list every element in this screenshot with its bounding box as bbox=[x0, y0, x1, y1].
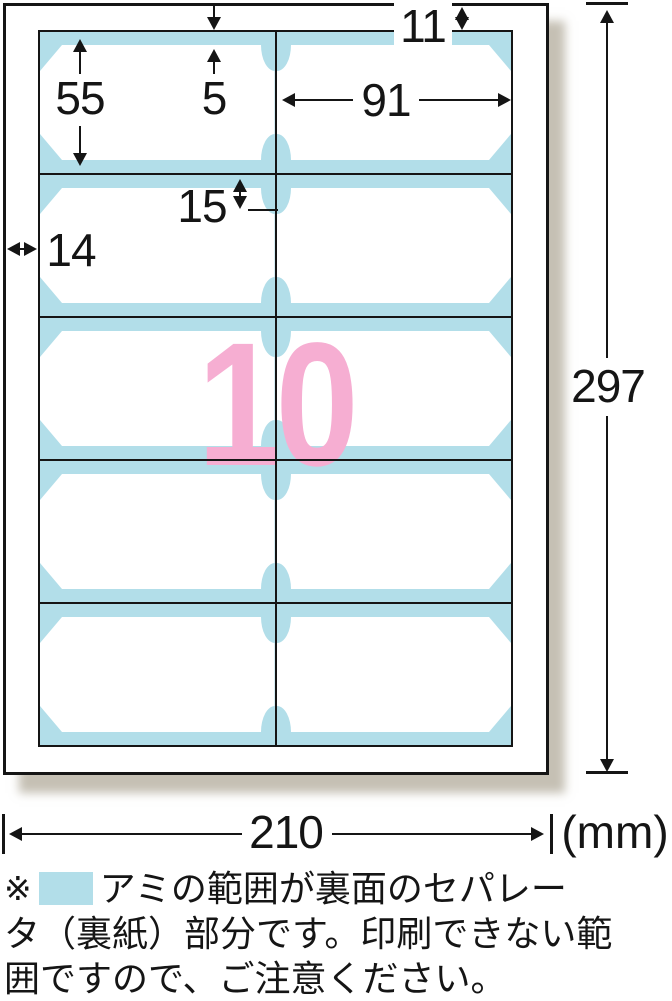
separator-color-swatch bbox=[39, 872, 93, 905]
arrowhead-down-icon bbox=[233, 196, 247, 212]
arrowhead-down-icon bbox=[73, 153, 87, 169]
dim-left-margin: 14 bbox=[40, 226, 102, 276]
note-block: ※ アミの範囲が裏面のセパレー タ（裏紙）部分です。印刷できない範 囲ですので、… bbox=[4, 866, 624, 1001]
dim-line bbox=[606, 416, 608, 762]
dim-line bbox=[79, 126, 81, 154]
dim-top-margin: 11 bbox=[394, 2, 452, 48]
label-cell bbox=[277, 175, 512, 316]
row-divider-line bbox=[40, 459, 511, 461]
row-divider-line bbox=[40, 316, 511, 318]
dim-line bbox=[18, 833, 242, 835]
note-line-3: 囲ですので、ご注意ください。 bbox=[4, 956, 624, 1001]
dim-tick bbox=[2, 814, 5, 854]
label-face bbox=[277, 188, 512, 303]
dim-line bbox=[79, 48, 81, 74]
dim-card-height: 55 bbox=[46, 74, 114, 124]
note-text: アミの範囲が裏面のセパレー bbox=[100, 866, 567, 911]
row-divider-line bbox=[40, 173, 511, 175]
dim-notch-inset: 15 bbox=[170, 182, 234, 232]
dim-tick bbox=[586, 2, 628, 5]
dim-tick bbox=[586, 771, 628, 774]
dim-page-height: 297 bbox=[562, 362, 654, 412]
dim-page-width: 210 bbox=[242, 808, 330, 858]
note-marker: ※ bbox=[4, 866, 32, 911]
label-cell bbox=[40, 604, 275, 745]
arrowhead-down-icon bbox=[455, 17, 469, 33]
dim-line bbox=[606, 18, 608, 358]
arrowhead-right-icon bbox=[498, 93, 514, 107]
arrowhead-right-icon bbox=[24, 242, 40, 256]
dim-tick bbox=[550, 814, 553, 854]
arrowhead-right-icon bbox=[531, 827, 547, 841]
label-face bbox=[40, 617, 275, 732]
dim-separator-band: 5 bbox=[180, 74, 248, 124]
dim-line bbox=[419, 99, 498, 101]
dim-line bbox=[248, 209, 278, 211]
dim-card-width: 91 bbox=[352, 76, 420, 126]
unit-label: (mm) bbox=[560, 808, 670, 858]
note-line-1: ※ アミの範囲が裏面のセパレー bbox=[4, 866, 624, 911]
dim-line bbox=[291, 99, 353, 101]
label-cell bbox=[277, 604, 512, 745]
note-line-2: タ（裏紙）部分です。印刷できない範 bbox=[4, 911, 624, 956]
label-grid: 10 bbox=[38, 30, 513, 747]
label-face bbox=[277, 617, 512, 732]
row-divider-line bbox=[40, 602, 511, 604]
arrowhead-down-icon bbox=[207, 17, 221, 33]
dim-line bbox=[332, 833, 532, 835]
column-divider-line bbox=[275, 32, 277, 745]
